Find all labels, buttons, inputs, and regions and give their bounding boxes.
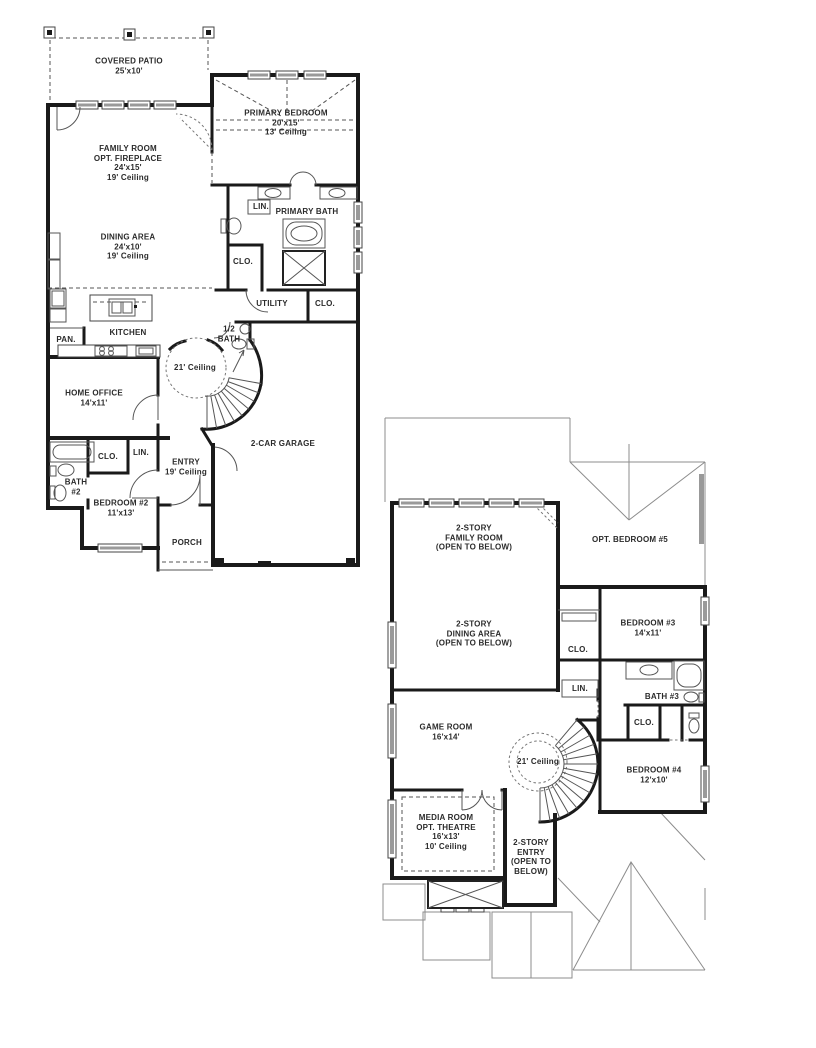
label-game-room: GAME ROOM 16'x14': [420, 722, 473, 741]
label-line: 14'x11': [621, 628, 676, 638]
label-line: CLO.: [568, 645, 588, 655]
label-pantry: PAN.: [56, 335, 75, 345]
label-garage: 2-CAR GARAGE: [251, 439, 315, 449]
label-primary-bedroom: PRIMARY BEDROOM 20'x15' 13' Ceiling: [244, 109, 327, 138]
bathtub-icon: [283, 219, 325, 248]
label-line: 2-STORY: [511, 838, 551, 848]
label-line: DINING AREA: [436, 629, 512, 639]
label-line: GAME ROOM: [420, 722, 473, 732]
label-line: FAMILY ROOM: [436, 533, 512, 543]
label-opt-bedroom5: OPT. BEDROOM #5: [592, 535, 668, 545]
label-line: BATH: [218, 334, 240, 344]
label-line: CLO.: [233, 257, 253, 267]
label-line: (OPEN TO BELOW): [436, 639, 512, 649]
label-media-room: MEDIA ROOM OPT. THEATRE 16'x13' 10' Ceil…: [416, 813, 476, 851]
label-line: PRIMARY BATH: [276, 207, 339, 217]
toilet-icon: [221, 218, 241, 234]
label-utility: UTILITY: [256, 299, 288, 309]
toilet-icon: [684, 692, 704, 702]
label-line: COVERED PATIO: [95, 56, 163, 66]
label-line: 21' Ceiling: [174, 363, 216, 373]
label-porch: PORCH: [172, 538, 202, 548]
label-line: 14'x11': [65, 398, 123, 408]
label-clo-bedroom2: CLO.: [98, 452, 118, 462]
label-line: ENTRY: [511, 847, 551, 857]
label-line: BELOW): [511, 867, 551, 877]
label-line: 19' Ceiling: [94, 173, 162, 183]
label-bedroom2: BEDROOM #2 11'x13': [94, 498, 149, 517]
label-line: OPT. FIREPLACE: [94, 153, 162, 163]
label-line: CLO.: [98, 452, 118, 462]
label-line: UTILITY: [256, 299, 288, 309]
label-lin-hall: LIN.: [572, 684, 588, 694]
label-line: 2-STORY: [436, 620, 512, 630]
label-lin-primary: LIN.: [253, 202, 269, 212]
label-line: OPT. BEDROOM #5: [592, 535, 668, 545]
label-kitchen: KITCHEN: [110, 328, 147, 338]
toilet-icon: [50, 485, 66, 501]
label-line: PAN.: [56, 335, 75, 345]
stair-icon-floor2: [509, 720, 598, 822]
label-line: LIN.: [133, 448, 149, 458]
label-primary-bath: PRIMARY BATH: [276, 207, 339, 217]
label-line: OPT. THEATRE: [416, 822, 476, 832]
label-half-bath: 1/2 BATH: [218, 324, 240, 343]
label-lin-bedroom2: LIN.: [133, 448, 149, 458]
label-line: HOME OFFICE: [65, 388, 123, 398]
label-line: CLO.: [634, 718, 654, 728]
label-line: CLO.: [315, 299, 335, 309]
label-entry-open: 2-STORY ENTRY (OPEN TO BELOW): [511, 838, 551, 876]
label-bedroom4: BEDROOM #4 12'x10': [627, 765, 682, 784]
label-bedroom3: BEDROOM #3 14'x11': [621, 618, 676, 637]
label-line: 10' Ceiling: [416, 842, 476, 852]
label-line: BEDROOM #4: [627, 765, 682, 775]
label-line: FAMILY ROOM: [94, 144, 162, 154]
label-line: PRIMARY BEDROOM: [244, 109, 327, 119]
label-line: 16'x14': [420, 732, 473, 742]
label-bath3: BATH #3: [645, 692, 679, 702]
label-line: 12'x10': [627, 775, 682, 785]
label-clo-primary: CLO.: [233, 257, 253, 267]
stair-icon-floor1: [166, 338, 261, 447]
label-line: 19' Ceiling: [165, 467, 207, 477]
label-line: LIN.: [253, 202, 269, 212]
label-line: ENTRY: [165, 457, 207, 467]
label-line: 2-CAR GARAGE: [251, 439, 315, 449]
shower-icon: [283, 251, 325, 285]
chimney-icon: [428, 881, 503, 908]
label-home-office: HOME OFFICE 14'x11': [65, 388, 123, 407]
bathtub-icon: [674, 661, 704, 690]
label-line: 13' Ceiling: [244, 128, 327, 138]
label-line: PORCH: [172, 538, 202, 548]
label-line: 19' Ceiling: [101, 252, 156, 262]
label-clo-bath3: CLO.: [634, 718, 654, 728]
label-line: BATH: [65, 477, 87, 487]
label-clo-utility: CLO.: [315, 299, 335, 309]
label-line: DINING AREA: [101, 233, 156, 243]
fridge-icon: [50, 289, 66, 322]
label-line: 20'x15': [244, 118, 327, 128]
label-covered-patio: COVERED PATIO 25'x10': [95, 56, 163, 75]
label-clo-bedroom3: CLO.: [568, 645, 588, 655]
label-family-room: FAMILY ROOM OPT. FIREPLACE 24'x15' 19' C…: [94, 144, 162, 182]
label-line: 24'x10': [101, 242, 156, 252]
label-rotunda-ceiling-1: 21' Ceiling: [174, 363, 216, 373]
label-dining-area: DINING AREA 24'x10' 19' Ceiling: [101, 233, 156, 262]
label-family-room-open: 2-STORY FAMILY ROOM (OPEN TO BELOW): [436, 524, 512, 553]
toilet-icon: [689, 713, 699, 733]
label-line: 16'x13': [416, 832, 476, 842]
label-line: (OPEN TO BELOW): [436, 543, 512, 553]
label-line: BEDROOM #2: [94, 498, 149, 508]
label-line: 24'x15': [94, 163, 162, 173]
label-line: (OPEN TO: [511, 857, 551, 867]
label-line: #2: [65, 487, 87, 497]
label-line: BEDROOM #3: [621, 618, 676, 628]
label-line: 2-STORY: [436, 524, 512, 534]
label-line: 25'x10': [95, 66, 163, 76]
label-line: 1/2: [218, 324, 240, 334]
label-line: KITCHEN: [110, 328, 147, 338]
primary-bath-fixtures: [221, 187, 357, 285]
floorplan-sheet: COVERED PATIO 25'x10' FAMILY ROOM OPT. F…: [0, 0, 816, 1048]
label-line: 11'x13': [94, 508, 149, 518]
label-line: MEDIA ROOM: [416, 813, 476, 823]
label-dining-area-open: 2-STORY DINING AREA (OPEN TO BELOW): [436, 620, 512, 649]
label-entry: ENTRY 19' Ceiling: [165, 457, 207, 476]
label-line: LIN.: [572, 684, 588, 694]
label-rotunda-ceiling-2: 21' Ceiling: [517, 757, 559, 767]
label-bath2: BATH #2: [65, 477, 87, 496]
label-line: BATH #3: [645, 692, 679, 702]
label-line: 21' Ceiling: [517, 757, 559, 767]
